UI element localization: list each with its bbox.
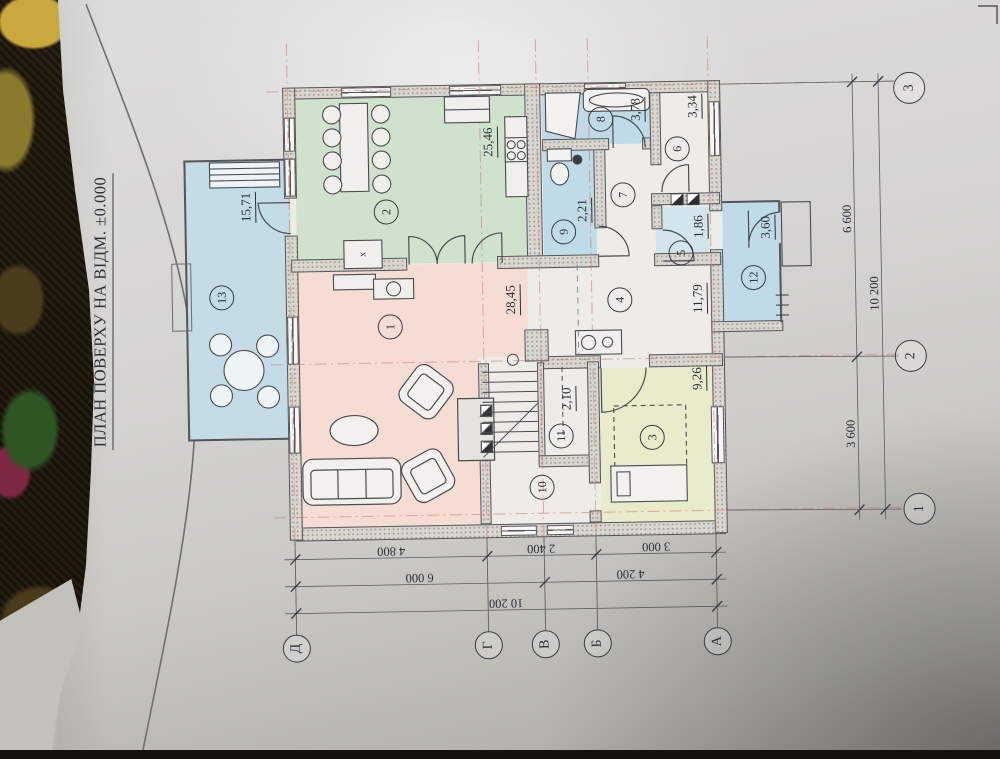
living-furniture (301, 359, 496, 508)
area-room-2: 25,46 (480, 126, 499, 158)
area-room-6: 3,34 (684, 94, 702, 119)
floor-drain (573, 155, 582, 164)
porch (774, 202, 812, 316)
dim-right-6600: 6 600 (840, 205, 855, 233)
dim-right-3600: 3 600 (843, 420, 858, 448)
dim-right-total: 10 200 (867, 276, 883, 311)
dim-bottom-2400: 2 400 (527, 541, 555, 556)
photo-of-floor-plan: ПЛАН ПОВЕРХУ НА ВІДМ. ±0.000 (0, 0, 1000, 750)
area-room-4: 11,79 (690, 283, 709, 314)
bed (611, 465, 688, 502)
area-room-11: 2,10 (558, 386, 576, 411)
kitchen-island-x: x (357, 252, 368, 257)
dim-bottom-4800: 4 800 (377, 543, 405, 558)
kitchen-cabinet-1 (333, 274, 375, 290)
area-room-8: 3,78 (627, 97, 645, 122)
dim-bottom-4200: 4 200 (616, 566, 644, 581)
area-room-13: 15,71 (238, 192, 257, 224)
armchair-1 (395, 360, 457, 422)
area-room-1: 28,45 (503, 284, 522, 316)
coffee-table (330, 415, 379, 446)
area-room-9: 2,21 (574, 198, 592, 223)
dim-bottom-6000: 6 000 (405, 570, 433, 585)
toilet-tank (547, 149, 571, 161)
door-wc (599, 226, 630, 257)
dim-bottom-total: 10 200 (489, 595, 524, 611)
area-room-12: 3,60 (757, 215, 775, 240)
door-terrace (258, 203, 291, 235)
bedroom-furniture (610, 405, 688, 502)
floor-plan: 1 2 3 4 5 6 7 8 9 10 11 12 13 28,45 25,4… (0, 0, 1000, 759)
area-room-3: 9,26 (689, 366, 707, 391)
toilet-bowl (550, 163, 568, 185)
stair-newel (507, 354, 518, 365)
door-double-living-dining (409, 236, 465, 265)
dining-set (322, 103, 391, 194)
dim-bottom-3000: 3 000 (642, 539, 670, 554)
armchair-2 (398, 445, 458, 506)
hall-boiler-unit (575, 330, 621, 355)
door-kitchen (472, 233, 503, 264)
door-room6 (661, 165, 688, 192)
area-room-5: 1,86 (690, 214, 708, 239)
duct-hatch-symbols (671, 194, 699, 205)
washbasin (545, 93, 581, 140)
terrace-table (224, 350, 265, 391)
